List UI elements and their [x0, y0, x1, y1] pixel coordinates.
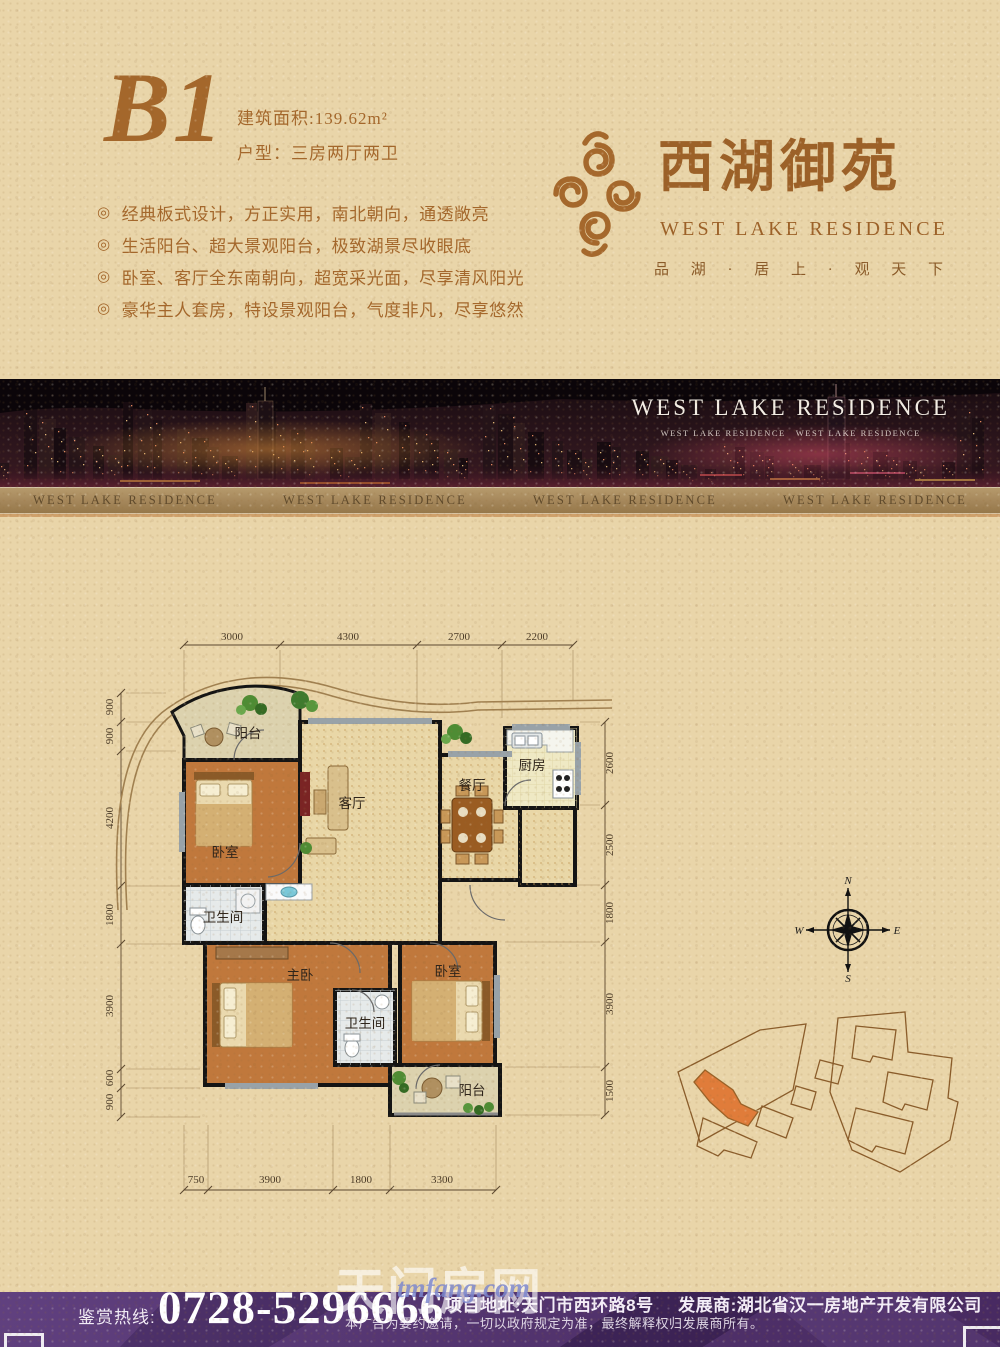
brand-tagline: 品 湖 · 居 上 · 观 天 下 — [654, 258, 952, 279]
svg-text:E: E — [893, 925, 901, 937]
svg-text:N: N — [843, 875, 852, 887]
svg-text:4300: 4300 — [337, 631, 360, 643]
brand-name-en: WEST LAKE RESIDENCE — [660, 218, 948, 241]
svg-text:W: W — [794, 925, 804, 937]
svg-text:卧室: 卧室 — [435, 963, 462, 979]
ring-bullet-icon: ◎ — [97, 299, 111, 318]
strip-text: WEST LAKE RESIDENCE — [533, 493, 717, 508]
svg-text:900: 900 — [104, 1093, 116, 1110]
svg-text:2700: 2700 — [448, 631, 471, 643]
svg-text:3300: 3300 — [431, 1174, 454, 1186]
svg-text:卫生间: 卫生间 — [203, 910, 244, 925]
unit-code: B1 — [104, 58, 225, 158]
svg-text:S: S — [845, 973, 851, 985]
svg-text:3900: 3900 — [104, 995, 116, 1018]
floorplan-rooms — [172, 686, 577, 1115]
feature-text: 经典板式设计，方正实用，南北朝向，通透敞亮 — [122, 200, 490, 225]
svg-text:3900: 3900 — [259, 1174, 282, 1186]
svg-text:1500: 1500 — [604, 1080, 616, 1103]
svg-text:1800: 1800 — [604, 902, 616, 925]
feature-item: ◎豪华主人套房，特设景观阳台，气度非凡，尽享悠然 — [97, 292, 524, 324]
compass-icon: N E S W — [794, 875, 900, 985]
svg-text:2500: 2500 — [604, 834, 616, 857]
banner-title: WEST LAKE RESIDENCE — [631, 395, 950, 421]
brand-name-cn: 西湖御苑 — [658, 140, 902, 196]
svg-text:阳台: 阳台 — [459, 1083, 486, 1098]
svg-text:卫生间: 卫生间 — [345, 1016, 386, 1031]
svg-text:2200: 2200 — [526, 631, 549, 643]
strip-text: WEST LAKE RESIDENCE — [33, 493, 217, 508]
feature-text: 卧室、客厅全东南朝向，超宽采光面，尽享清风阳光 — [122, 264, 525, 289]
corner-frame-bottom-left — [4, 1333, 44, 1347]
svg-text:卧室: 卧室 — [212, 844, 239, 860]
svg-text:1800: 1800 — [350, 1174, 373, 1186]
svg-text:750: 750 — [188, 1174, 205, 1186]
svg-text:3900: 3900 — [604, 993, 616, 1016]
svg-text:900: 900 — [104, 727, 116, 744]
ring-bullet-icon: ◎ — [97, 235, 111, 254]
svg-text:4200: 4200 — [104, 807, 116, 830]
svg-text:客厅: 客厅 — [339, 795, 366, 811]
siteplan — [678, 1012, 958, 1172]
brand-strip: WEST LAKE RESIDENCE WEST LAKE RESIDENCE … — [0, 487, 1000, 514]
corner-frame-bottom-right — [963, 1326, 1000, 1347]
feature-item: ◎经典板式设计，方正实用，南北朝向，通透敞亮 — [97, 196, 524, 228]
unit-layout: 户型：三房两厅两卫 — [237, 139, 399, 164]
feature-item: ◎生活阳台、超大景观阳台，极致湖景尽收眼底 — [97, 228, 524, 260]
strip-text: WEST LAKE RESIDENCE — [783, 493, 967, 508]
banner-text-block: WEST LAKE RESIDENCE WEST LAKE RESIDENCE … — [631, 395, 950, 439]
svg-text:主卧: 主卧 — [287, 968, 314, 983]
feature-item: ◎卧室、客厅全东南朝向，超宽采光面，尽享清风阳光 — [97, 260, 524, 292]
disclaimer: 本广告为要约邀请，一切以政府规定为准，最终解释权归发展商所有。 — [345, 1313, 945, 1332]
banner-subtitle: WEST LAKE RESIDENCE WEST LAKE RESIDENCE — [631, 427, 950, 439]
cloud-swirl-logo-icon — [545, 130, 650, 260]
floorplan-canvas: 3000 4300 2700 2200 900 900 4200 1800 39… — [0, 612, 1000, 1212]
ring-bullet-icon: ◎ — [97, 203, 111, 222]
hotline-label: 鉴赏热线: — [78, 1303, 156, 1328]
svg-text:餐厅: 餐厅 — [459, 778, 486, 793]
svg-text:900: 900 — [104, 698, 116, 715]
strip-text: WEST LAKE RESIDENCE — [283, 493, 467, 508]
feature-list: ◎经典板式设计，方正实用，南北朝向，通透敞亮 ◎生活阳台、超大景观阳台，极致湖景… — [97, 196, 524, 324]
svg-text:阳台: 阳台 — [235, 726, 262, 741]
feature-text: 生活阳台、超大景观阳台，极致湖景尽收眼底 — [122, 232, 472, 257]
svg-text:1800: 1800 — [104, 904, 116, 927]
built-area: 建筑面积:139.62m² — [237, 104, 388, 129]
svg-text:2600: 2600 — [604, 752, 616, 775]
feature-text: 豪华主人套房，特设景观阳台，气度非凡，尽享悠然 — [122, 296, 525, 321]
ring-bullet-icon: ◎ — [97, 267, 111, 286]
poster-page: B1 建筑面积:139.62m² 户型：三房两厅两卫 ◎经典板式设计，方正实用，… — [0, 0, 1000, 1347]
svg-text:3000: 3000 — [221, 631, 244, 643]
svg-text:600: 600 — [104, 1069, 116, 1086]
svg-text:厨房: 厨房 — [519, 758, 546, 773]
skyline-banner: WEST LAKE RESIDENCE WEST LAKE RESIDENCE … — [0, 379, 1000, 487]
